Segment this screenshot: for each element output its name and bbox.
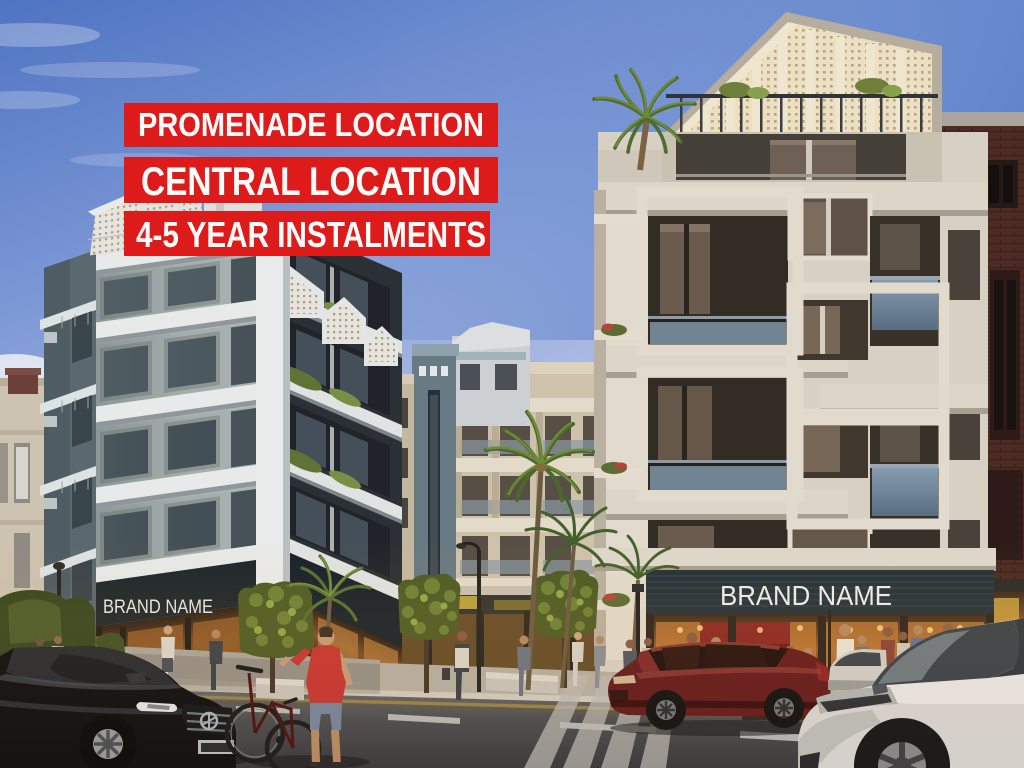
svg-text:CENTRAL LOCATION: CENTRAL LOCATION	[141, 160, 481, 204]
svg-text:PROMENADE LOCATION: PROMENADE LOCATION	[138, 106, 484, 143]
svg-text:4-5 YEAR INSTALMENTS: 4-5 YEAR INSTALMENTS	[136, 214, 486, 255]
